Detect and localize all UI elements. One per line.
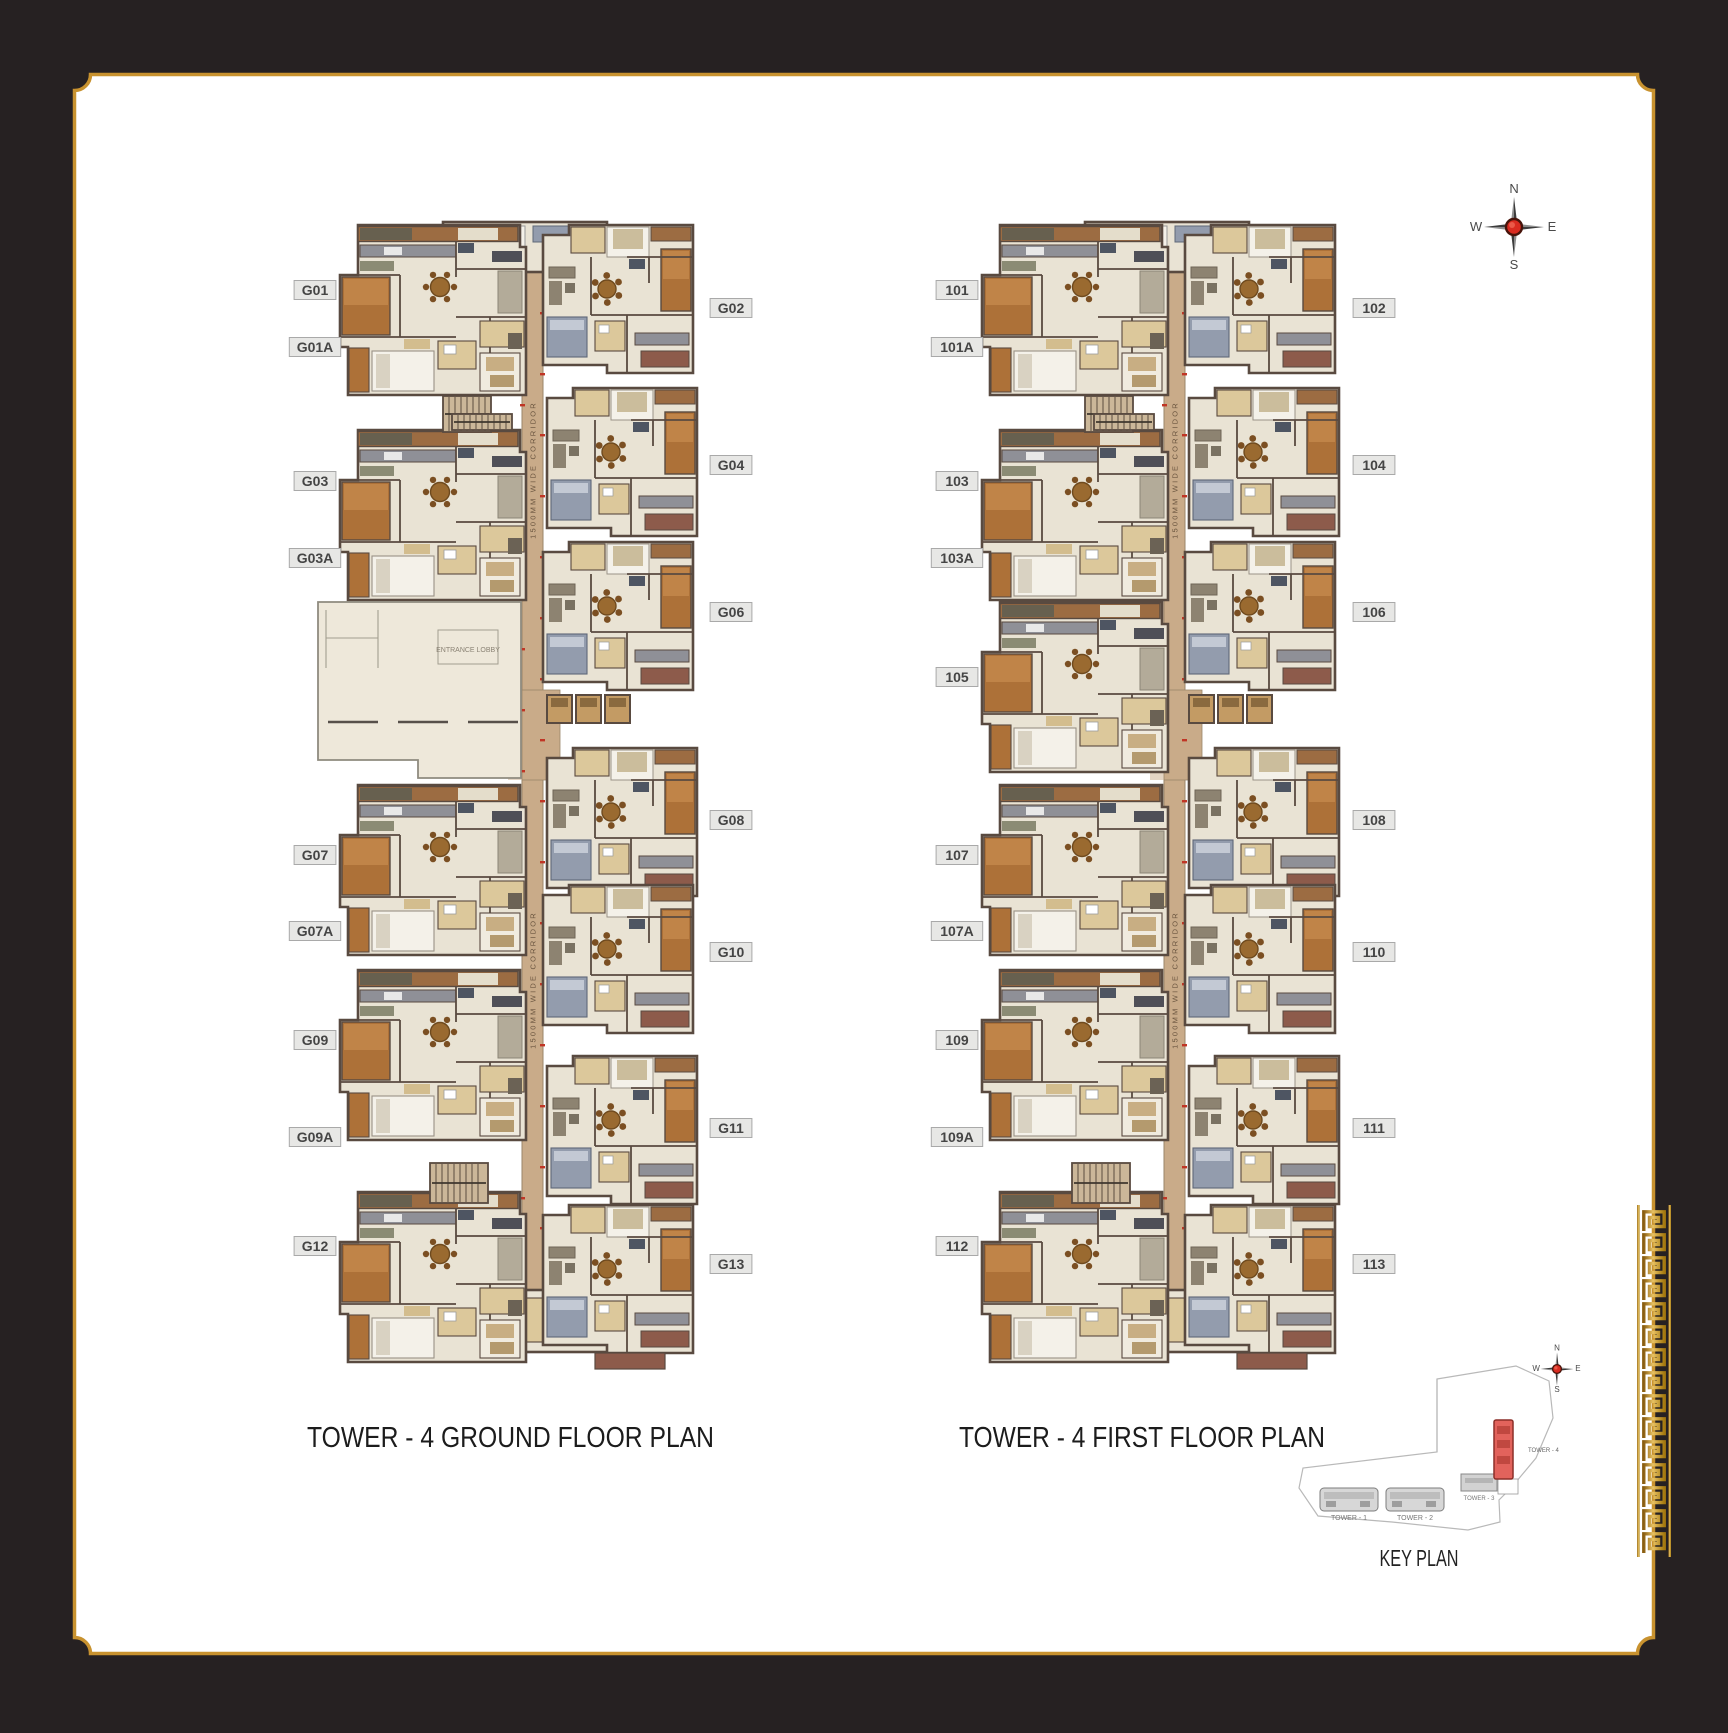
svg-text:111: 111	[1363, 1120, 1385, 1136]
svg-text:TOWER - 4: TOWER - 4	[1528, 1448, 1560, 1454]
svg-text:N: N	[1509, 181, 1518, 196]
svg-text:101: 101	[945, 282, 969, 298]
svg-text:TOWER - 3: TOWER - 3	[1464, 1496, 1496, 1502]
svg-text:G04: G04	[718, 457, 745, 473]
svg-text:TOWER - 4 GROUND FLOOR PLAN: TOWER - 4 GROUND FLOOR PLAN	[307, 1422, 714, 1454]
svg-text:G09: G09	[302, 1032, 329, 1048]
svg-text:108: 108	[1362, 812, 1386, 828]
svg-text:G12: G12	[302, 1238, 329, 1254]
svg-text:TOWER - 1: TOWER - 1	[1331, 1515, 1367, 1522]
svg-text:109A: 109A	[940, 1129, 973, 1145]
svg-text:103A: 103A	[940, 550, 973, 566]
svg-text:TOWER - 2: TOWER - 2	[1397, 1515, 1433, 1522]
svg-text:G08: G08	[718, 812, 745, 828]
svg-text:107A: 107A	[940, 923, 973, 939]
svg-text:G02: G02	[718, 300, 745, 316]
svg-text:TOWER - 4 FIRST FLOOR PLAN: TOWER - 4 FIRST FLOOR PLAN	[959, 1422, 1325, 1454]
svg-text:G01A: G01A	[297, 339, 334, 355]
svg-text:104: 104	[1362, 457, 1386, 473]
svg-text:G09A: G09A	[297, 1129, 334, 1145]
svg-text:1500MM WIDE CORRIDOR: 1500MM WIDE CORRIDOR	[1171, 401, 1180, 539]
svg-text:106: 106	[1362, 604, 1386, 620]
svg-text:G10: G10	[718, 944, 745, 960]
svg-text:1500MM WIDE CORRIDOR: 1500MM WIDE CORRIDOR	[529, 401, 538, 539]
svg-text:S: S	[1554, 1385, 1559, 1394]
svg-text:E: E	[1575, 1364, 1580, 1373]
svg-text:ENTRANCE LOBBY: ENTRANCE LOBBY	[436, 647, 500, 654]
svg-text:109: 109	[945, 1032, 969, 1048]
svg-text:101A: 101A	[940, 339, 973, 355]
svg-text:N: N	[1554, 1343, 1560, 1352]
svg-text:E: E	[1548, 219, 1557, 234]
svg-text:102: 102	[1362, 300, 1386, 316]
svg-text:G03: G03	[302, 473, 329, 489]
svg-text:103: 103	[945, 473, 969, 489]
svg-text:S: S	[1510, 257, 1519, 272]
svg-text:G06: G06	[718, 604, 745, 620]
svg-text:107: 107	[945, 847, 969, 863]
svg-text:G07A: G07A	[297, 923, 334, 939]
svg-text:G07: G07	[302, 847, 329, 863]
svg-text:112: 112	[946, 1238, 969, 1254]
svg-text:W: W	[1470, 219, 1483, 234]
svg-text:KEY PLAN: KEY PLAN	[1380, 1545, 1459, 1571]
svg-text:W: W	[1532, 1364, 1540, 1373]
svg-text:105: 105	[945, 669, 969, 685]
svg-text:110: 110	[1363, 944, 1386, 960]
svg-text:1500MM WIDE CORRIDOR: 1500MM WIDE CORRIDOR	[529, 911, 538, 1049]
svg-text:G11: G11	[718, 1120, 744, 1136]
svg-text:1500MM WIDE CORRIDOR: 1500MM WIDE CORRIDOR	[1171, 911, 1180, 1049]
svg-text:113: 113	[1363, 1256, 1386, 1272]
svg-text:G03A: G03A	[297, 550, 334, 566]
svg-text:G01: G01	[302, 282, 329, 298]
svg-text:G13: G13	[718, 1256, 745, 1272]
